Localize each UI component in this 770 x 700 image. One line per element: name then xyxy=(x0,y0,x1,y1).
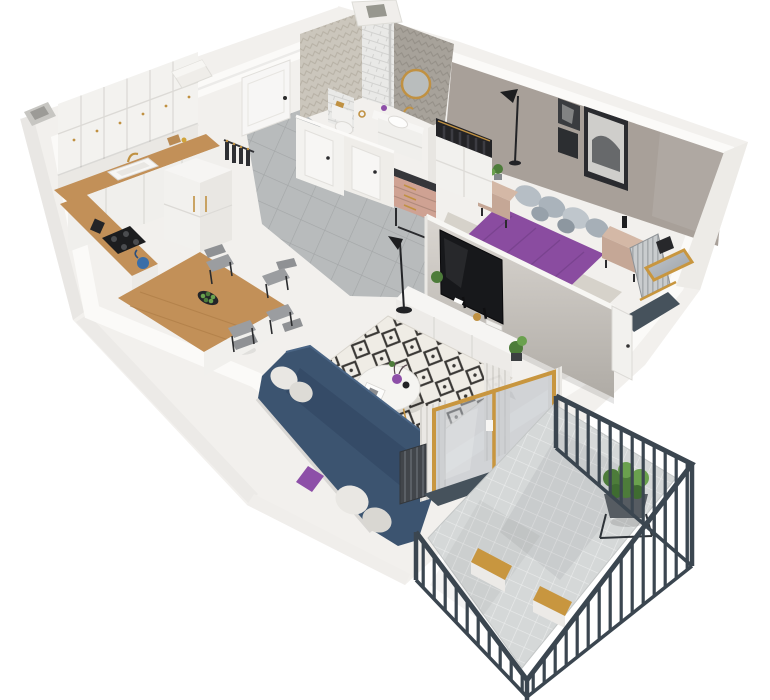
entrance-door-handle xyxy=(283,96,287,100)
living-radiator xyxy=(400,444,426,504)
bedroom-floor-lamp-base xyxy=(509,161,521,166)
wc-door-handle xyxy=(326,156,330,160)
bathroom-door-handle xyxy=(373,170,377,174)
sprig-leaves xyxy=(389,361,395,367)
living-floor-lamp-base xyxy=(396,307,412,314)
floorplan-render: 3D isometric cutaway floor plan render o… xyxy=(0,0,770,700)
plant-on-floor-right-light xyxy=(517,336,527,346)
bedroom-door xyxy=(612,306,632,380)
plant-pot-right xyxy=(511,353,522,361)
bedroom-door-handle xyxy=(626,344,630,348)
door-handle xyxy=(486,420,493,431)
chimney-top-flue xyxy=(366,4,387,18)
blue-kettle xyxy=(137,257,149,269)
black-vase xyxy=(403,382,410,389)
purple-vase xyxy=(392,374,402,384)
plant-on-floor-left xyxy=(431,271,443,283)
counter-jar xyxy=(182,138,187,143)
table-lamp xyxy=(622,216,627,228)
gold-cup xyxy=(473,313,481,321)
tall-fridge-cabinet xyxy=(164,158,232,252)
floorplan-svg: 3D isometric cutaway floor plan render o… xyxy=(0,0,770,700)
plant-pot xyxy=(494,174,502,180)
round-gold-mirror xyxy=(402,70,430,98)
soap-bottle xyxy=(381,105,387,111)
